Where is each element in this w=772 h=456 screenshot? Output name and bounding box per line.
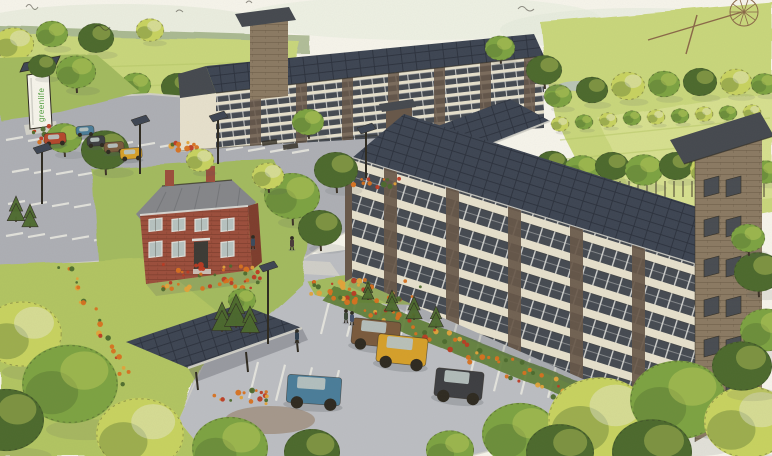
flower bbox=[225, 279, 230, 284]
flower bbox=[186, 270, 189, 273]
flower bbox=[360, 178, 363, 181]
flower bbox=[362, 182, 365, 185]
tree-highlight bbox=[72, 58, 92, 74]
flower bbox=[327, 289, 332, 294]
tower-window bbox=[704, 256, 719, 277]
front-pier bbox=[508, 206, 521, 351]
tower-window bbox=[704, 216, 719, 237]
flower bbox=[540, 385, 544, 389]
flower bbox=[357, 278, 363, 284]
tree-shadow bbox=[652, 124, 667, 128]
tree-highlight bbox=[222, 422, 260, 452]
flower bbox=[32, 131, 35, 134]
flower bbox=[466, 355, 471, 360]
flower bbox=[557, 385, 560, 388]
flower bbox=[520, 360, 525, 365]
tower-window bbox=[704, 176, 719, 197]
car-windshield bbox=[297, 376, 326, 390]
flower bbox=[127, 370, 131, 374]
flower bbox=[340, 284, 344, 288]
flower bbox=[258, 276, 262, 280]
tree-shadow bbox=[193, 170, 217, 176]
flower bbox=[312, 280, 316, 284]
flower bbox=[186, 141, 189, 144]
tree-shadow bbox=[66, 87, 100, 96]
flower bbox=[243, 267, 249, 273]
flower bbox=[260, 391, 263, 394]
flower bbox=[467, 360, 472, 365]
rear-pier bbox=[342, 78, 353, 141]
tree-shadow bbox=[35, 76, 59, 82]
flower bbox=[265, 394, 269, 398]
flower bbox=[243, 272, 247, 276]
flower bbox=[97, 321, 103, 327]
flower bbox=[264, 402, 267, 405]
flower bbox=[351, 278, 356, 283]
flower bbox=[487, 356, 490, 359]
person-leg bbox=[254, 246, 255, 249]
flower bbox=[255, 389, 258, 392]
flower bbox=[182, 274, 184, 276]
flower bbox=[256, 280, 260, 284]
person-head bbox=[344, 309, 348, 313]
flower bbox=[539, 373, 544, 378]
flower bbox=[257, 396, 262, 401]
flower bbox=[309, 292, 313, 296]
flower bbox=[240, 396, 243, 399]
flower bbox=[407, 319, 411, 323]
flower bbox=[397, 177, 401, 181]
flower bbox=[368, 313, 373, 318]
flower bbox=[316, 290, 322, 296]
person-leg bbox=[353, 322, 354, 325]
person-head bbox=[290, 236, 294, 240]
tree-highlight bbox=[306, 433, 334, 455]
flower bbox=[411, 295, 414, 298]
flower bbox=[351, 291, 356, 296]
flower bbox=[508, 376, 513, 381]
flower bbox=[479, 354, 485, 360]
tree-shadow bbox=[535, 83, 566, 91]
flower bbox=[110, 344, 114, 348]
tree-highlight bbox=[0, 394, 36, 424]
flower bbox=[95, 307, 98, 310]
flower bbox=[176, 147, 182, 153]
flower bbox=[462, 340, 466, 344]
flower bbox=[199, 273, 202, 276]
flower bbox=[249, 388, 255, 394]
flower bbox=[235, 390, 241, 396]
flower bbox=[338, 295, 342, 299]
flower bbox=[387, 184, 392, 189]
tree-shadow bbox=[676, 123, 691, 127]
tree-highlight bbox=[553, 429, 587, 456]
flower bbox=[497, 360, 500, 363]
person-body bbox=[295, 333, 299, 341]
person-shadow bbox=[294, 342, 301, 344]
tree-shadow bbox=[740, 250, 769, 257]
flower bbox=[37, 140, 41, 144]
flower bbox=[442, 339, 447, 344]
person-leg bbox=[296, 340, 297, 343]
tree-highlight bbox=[14, 307, 54, 339]
flower bbox=[386, 178, 389, 181]
flower bbox=[218, 282, 222, 286]
flower bbox=[220, 397, 225, 402]
tree-highlight bbox=[332, 155, 354, 173]
flower bbox=[222, 269, 225, 272]
tree-shadow bbox=[628, 125, 643, 129]
flower bbox=[475, 351, 478, 354]
person-shadow bbox=[343, 322, 350, 324]
person-head bbox=[350, 311, 354, 315]
flower bbox=[374, 298, 379, 303]
flower bbox=[176, 142, 181, 147]
flower bbox=[316, 284, 321, 289]
flower bbox=[375, 185, 379, 189]
tree-highlight bbox=[60, 351, 108, 389]
flower bbox=[222, 266, 225, 269]
tree-shadow bbox=[551, 106, 575, 112]
flower bbox=[244, 280, 246, 282]
flower bbox=[165, 284, 170, 289]
flower bbox=[331, 296, 336, 301]
flower bbox=[229, 265, 232, 268]
tree-shadow bbox=[55, 151, 86, 159]
flower bbox=[162, 263, 165, 266]
person-head bbox=[251, 235, 255, 239]
flower bbox=[39, 136, 43, 140]
flower bbox=[447, 347, 453, 353]
flower bbox=[98, 334, 102, 338]
flower bbox=[198, 262, 204, 268]
person-leg bbox=[351, 322, 352, 325]
tree-shadow bbox=[700, 121, 715, 125]
flower bbox=[331, 283, 333, 285]
flower bbox=[57, 266, 60, 269]
car-windshield bbox=[48, 134, 60, 139]
flower bbox=[47, 124, 51, 128]
person-leg bbox=[252, 246, 253, 249]
flower bbox=[69, 266, 74, 271]
tree-highlight bbox=[625, 74, 642, 88]
person-shadow bbox=[349, 324, 356, 326]
flower bbox=[433, 329, 436, 332]
flower bbox=[528, 368, 532, 372]
flower bbox=[200, 286, 205, 291]
flower bbox=[169, 286, 173, 290]
rendering-canvas: greenlife bbox=[0, 0, 772, 456]
tree-shadow bbox=[580, 129, 595, 133]
tower-window bbox=[726, 296, 741, 317]
flower bbox=[414, 332, 417, 335]
flower bbox=[243, 391, 246, 394]
car bbox=[283, 374, 345, 414]
tower-window bbox=[704, 296, 719, 317]
car-windshield bbox=[124, 149, 136, 154]
flower bbox=[120, 382, 124, 386]
tree-shadow bbox=[620, 98, 649, 105]
flower bbox=[75, 281, 78, 284]
flower bbox=[312, 283, 316, 287]
flower bbox=[251, 266, 255, 270]
person-body bbox=[350, 315, 354, 323]
flower bbox=[105, 335, 110, 340]
tree-highlight bbox=[736, 346, 766, 370]
rear-end-wall bbox=[180, 93, 216, 152]
tree-highlight bbox=[668, 367, 716, 405]
flower bbox=[344, 299, 350, 305]
tree-highlight bbox=[644, 425, 684, 456]
flower bbox=[161, 287, 165, 291]
person-body bbox=[344, 313, 348, 321]
flower bbox=[411, 325, 415, 329]
flower bbox=[364, 309, 367, 312]
person-head bbox=[295, 329, 299, 333]
flower bbox=[457, 337, 462, 342]
flower bbox=[522, 371, 526, 375]
flower bbox=[252, 275, 257, 280]
car bbox=[86, 135, 107, 150]
flower bbox=[383, 178, 385, 180]
person-leg bbox=[347, 320, 348, 323]
flower bbox=[348, 287, 351, 290]
tree-shadow bbox=[556, 131, 571, 135]
flower bbox=[504, 358, 508, 362]
tree-highlight bbox=[540, 58, 558, 72]
flower bbox=[229, 399, 232, 402]
flower bbox=[531, 371, 535, 375]
tree-highlight bbox=[697, 70, 714, 84]
flower bbox=[374, 312, 377, 315]
flower bbox=[554, 377, 559, 382]
tree-highlight bbox=[286, 177, 314, 199]
flower bbox=[194, 264, 198, 268]
flower bbox=[265, 390, 268, 393]
person-body bbox=[251, 239, 255, 247]
tree-highlight bbox=[745, 226, 762, 240]
flower bbox=[357, 284, 360, 287]
front-pier bbox=[570, 226, 583, 379]
flower bbox=[363, 278, 367, 282]
flower bbox=[181, 271, 183, 273]
tree-shadow bbox=[604, 127, 619, 131]
flower bbox=[249, 399, 254, 404]
flower bbox=[229, 281, 233, 285]
flower bbox=[111, 349, 116, 354]
flower bbox=[118, 372, 122, 376]
door-pediment bbox=[192, 239, 210, 240]
flower bbox=[81, 300, 86, 305]
tree-shadow bbox=[143, 40, 167, 46]
car-windshield bbox=[107, 143, 118, 148]
flower bbox=[447, 330, 452, 335]
flower bbox=[249, 287, 252, 290]
car-windshield bbox=[79, 127, 89, 131]
flower bbox=[41, 127, 46, 132]
tower-window bbox=[726, 176, 741, 197]
flower bbox=[255, 270, 259, 274]
flower bbox=[116, 354, 121, 359]
tree-highlight bbox=[10, 30, 30, 46]
person-leg bbox=[291, 247, 292, 250]
house-chimney bbox=[165, 170, 174, 186]
flower bbox=[76, 286, 80, 290]
person-shadow bbox=[289, 249, 296, 251]
flower bbox=[396, 312, 402, 318]
tree-highlight bbox=[445, 434, 469, 453]
flower bbox=[184, 286, 190, 292]
tree-highlight bbox=[609, 154, 626, 168]
tree-shadow bbox=[668, 178, 697, 185]
person-body bbox=[290, 240, 294, 248]
flower bbox=[393, 182, 396, 185]
person-leg bbox=[293, 247, 294, 250]
flower bbox=[229, 277, 233, 281]
artist-rendering: greenlife bbox=[0, 0, 772, 456]
flower bbox=[367, 181, 371, 185]
person-leg bbox=[298, 340, 299, 343]
tree-shadow bbox=[93, 168, 134, 179]
flower bbox=[505, 375, 509, 379]
sign-text: greenlife bbox=[37, 88, 46, 122]
flower bbox=[239, 264, 243, 268]
flower bbox=[176, 268, 181, 273]
flower bbox=[535, 382, 540, 387]
tree-highlight bbox=[131, 404, 175, 439]
car-windshield bbox=[90, 137, 100, 142]
flower bbox=[352, 299, 358, 305]
flower bbox=[122, 366, 126, 370]
flower bbox=[192, 143, 196, 147]
tree-shadow bbox=[692, 94, 721, 101]
flower bbox=[453, 338, 457, 342]
flower bbox=[511, 358, 514, 361]
tree-highlight bbox=[316, 213, 338, 231]
tree-highlight bbox=[578, 158, 596, 172]
flower bbox=[422, 330, 427, 335]
flower bbox=[208, 284, 212, 288]
flower bbox=[184, 146, 190, 152]
tree-highlight bbox=[640, 157, 659, 172]
rear-chimney-tower bbox=[250, 20, 288, 100]
person-shadow bbox=[250, 248, 257, 250]
flower bbox=[213, 394, 217, 398]
flower bbox=[419, 285, 422, 288]
front-pier bbox=[446, 187, 459, 325]
flower bbox=[264, 398, 268, 402]
flower bbox=[495, 356, 499, 360]
flower bbox=[403, 279, 407, 283]
flower bbox=[381, 182, 387, 188]
flower bbox=[177, 283, 180, 286]
flower bbox=[233, 284, 237, 288]
flower bbox=[76, 277, 79, 280]
flower bbox=[169, 281, 172, 284]
flower bbox=[517, 380, 520, 383]
flower bbox=[367, 177, 371, 181]
person-leg bbox=[345, 320, 346, 323]
flower bbox=[213, 274, 216, 277]
